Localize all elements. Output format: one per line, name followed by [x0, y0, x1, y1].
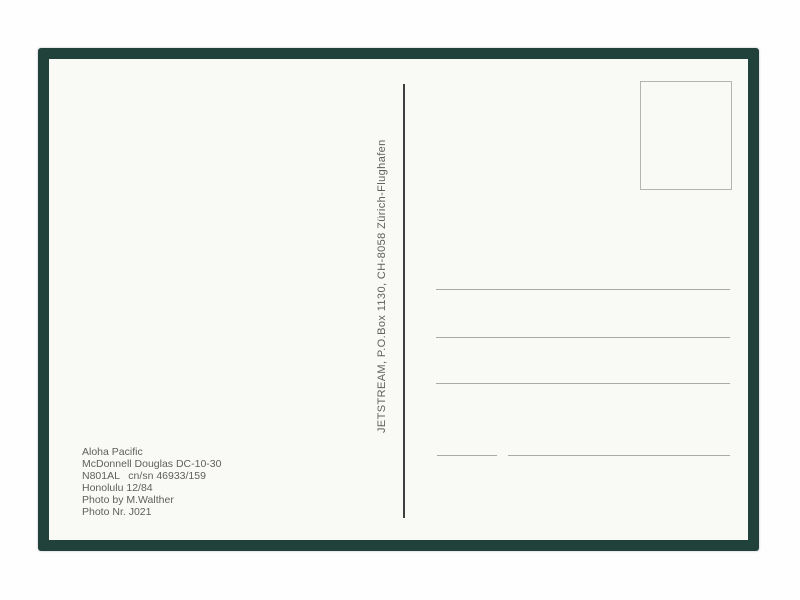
publisher-imprint: JETSTREAM, P.O.Box 1130, CH-8058 Zürich-… — [376, 139, 389, 433]
address-rule-4-segment-b — [508, 455, 730, 456]
photo-caption: Aloha Pacific McDonnell Douglas DC-10-30… — [82, 446, 221, 518]
caption-photographer: Photo by M.Walther — [82, 494, 221, 506]
caption-aircraft-type: McDonnell Douglas DC-10-30 — [82, 458, 221, 470]
address-rule-1 — [436, 289, 730, 290]
address-rule-2 — [436, 337, 730, 338]
caption-location-date: Honolulu 12/84 — [82, 482, 221, 494]
caption-registration-serial: N801AL cn/sn 46933/159 — [82, 470, 221, 482]
stamp-box — [640, 81, 732, 190]
caption-photo-number: Photo Nr. J021 — [82, 506, 221, 518]
postcard-paper: JETSTREAM, P.O.Box 1130, CH-8058 Zürich-… — [49, 59, 748, 540]
scan-background: JETSTREAM, P.O.Box 1130, CH-8058 Zürich-… — [0, 0, 800, 600]
caption-airline: Aloha Pacific — [82, 446, 221, 458]
postcard-back: JETSTREAM, P.O.Box 1130, CH-8058 Zürich-… — [38, 48, 759, 551]
center-divider-line — [403, 84, 405, 518]
address-rule-4-segment-a — [437, 455, 497, 456]
address-rule-3 — [436, 383, 730, 384]
